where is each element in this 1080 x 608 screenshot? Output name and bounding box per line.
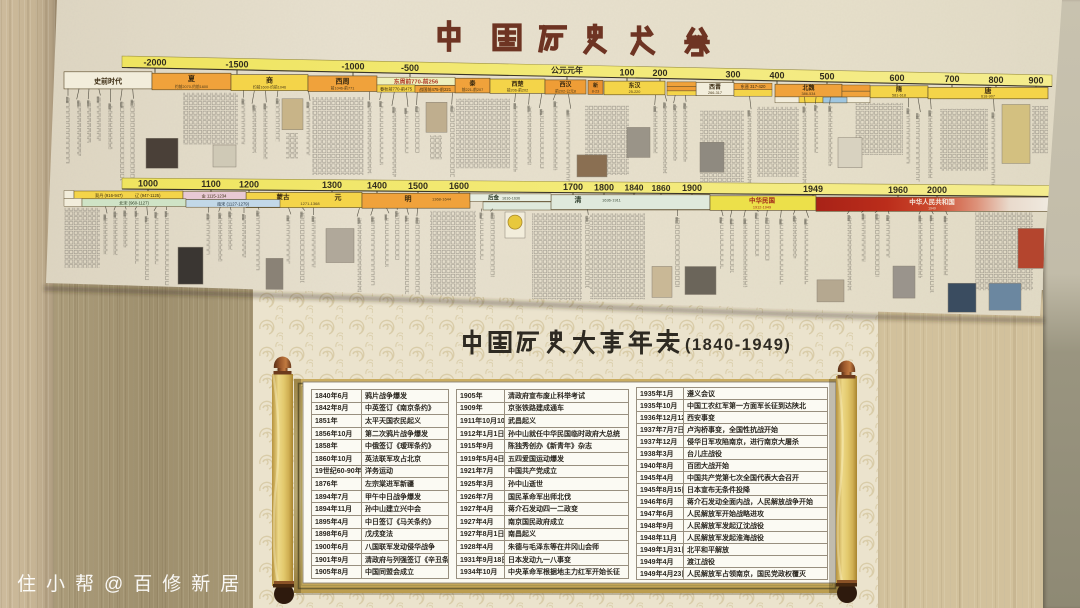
svg-text:西周: 西周 bbox=[336, 76, 350, 85]
svg-text:1300: 1300 bbox=[322, 180, 342, 190]
svg-text:北魏: 北魏 bbox=[802, 84, 814, 92]
svg-text:辽 (947-1125): 辽 (947-1125) bbox=[135, 192, 161, 199]
svg-text:-500: -500 bbox=[401, 63, 419, 73]
svg-text:秦: 秦 bbox=[468, 79, 475, 87]
svg-text:明: 明 bbox=[405, 194, 412, 203]
svg-text:1636-1911: 1636-1911 bbox=[602, 197, 622, 202]
svg-text:1860: 1860 bbox=[652, 183, 671, 193]
svg-text:战国前475-前221: 战国前475-前221 bbox=[419, 86, 452, 93]
svg-text:1949: 1949 bbox=[803, 184, 823, 194]
svg-text:前206-前202: 前206-前202 bbox=[507, 88, 529, 93]
svg-text:-2000: -2000 bbox=[143, 58, 166, 68]
svg-text:隋: 隋 bbox=[896, 86, 902, 94]
svg-text:前1046-前771: 前1046-前771 bbox=[331, 86, 355, 91]
svg-text:25-220: 25-220 bbox=[629, 90, 641, 94]
svg-text:东周前770-前256: 东周前770-前256 bbox=[394, 78, 439, 86]
svg-text:700: 700 bbox=[944, 74, 959, 84]
svg-text:契丹 (916-947): 契丹 (916-947) bbox=[95, 192, 123, 199]
svg-text:前202-公元8: 前202-公元8 bbox=[555, 88, 576, 93]
svg-text:1500: 1500 bbox=[408, 181, 428, 191]
svg-text:400: 400 bbox=[769, 70, 784, 80]
svg-text:300: 300 bbox=[725, 70, 740, 80]
svg-text:1100: 1100 bbox=[201, 179, 221, 189]
svg-text:1800: 1800 bbox=[594, 182, 614, 192]
svg-text:1700: 1700 bbox=[563, 182, 583, 192]
svg-text:南宋 (1127-1279): 南宋 (1127-1279) bbox=[217, 200, 250, 207]
svg-text:北宋 (960-1127): 北宋 (960-1127) bbox=[119, 200, 149, 207]
svg-text:西晋: 西晋 bbox=[709, 83, 721, 91]
svg-text:386-534: 386-534 bbox=[802, 92, 816, 96]
svg-text:夏: 夏 bbox=[187, 74, 196, 83]
svg-text:东汉: 东汉 bbox=[628, 82, 641, 90]
svg-text:清: 清 bbox=[575, 195, 582, 204]
svg-text:1000: 1000 bbox=[138, 179, 158, 189]
svg-text:东晋 317-420: 东晋 317-420 bbox=[741, 83, 767, 90]
svg-text:公元元年: 公元元年 bbox=[551, 65, 583, 75]
svg-text:1949: 1949 bbox=[928, 207, 936, 211]
svg-text:1960: 1960 bbox=[888, 185, 908, 195]
svg-text:1912-1949: 1912-1949 bbox=[753, 205, 771, 209]
svg-text:史前时代: 史前时代 bbox=[94, 76, 122, 85]
svg-text:1900: 1900 bbox=[682, 183, 702, 193]
svg-text:后金: 后金 bbox=[488, 194, 500, 202]
svg-text:元: 元 bbox=[335, 193, 342, 201]
svg-text:500: 500 bbox=[819, 71, 834, 81]
svg-text:1616-1636: 1616-1636 bbox=[502, 196, 520, 200]
svg-text:-1500: -1500 bbox=[225, 59, 248, 69]
svg-text:100: 100 bbox=[619, 67, 634, 77]
svg-text:前221-前207: 前221-前207 bbox=[462, 87, 484, 92]
svg-text:900: 900 bbox=[1028, 76, 1043, 86]
svg-text:618-907: 618-907 bbox=[981, 94, 995, 98]
svg-text:581-618: 581-618 bbox=[892, 93, 906, 97]
svg-text:西楚: 西楚 bbox=[511, 80, 524, 88]
svg-text:约前1600-约前1046: 约前1600-约前1046 bbox=[253, 85, 286, 90]
svg-text:金 1115-1234: 金 1115-1234 bbox=[202, 193, 227, 199]
svg-text:600: 600 bbox=[889, 73, 904, 83]
svg-text:800: 800 bbox=[988, 75, 1003, 85]
svg-text:1200: 1200 bbox=[239, 180, 259, 190]
svg-text:西汉: 西汉 bbox=[559, 81, 572, 89]
svg-text:商: 商 bbox=[266, 75, 273, 84]
svg-text:1271-1368: 1271-1368 bbox=[300, 201, 320, 206]
svg-text:约前2070-约前1600: 约前2070-约前1600 bbox=[175, 84, 208, 89]
svg-text:1600: 1600 bbox=[449, 181, 469, 191]
svg-text:-1000: -1000 bbox=[341, 62, 364, 72]
svg-text:中华民国: 中华民国 bbox=[749, 196, 776, 205]
svg-text:新: 新 bbox=[593, 82, 598, 89]
svg-text:1840: 1840 bbox=[625, 183, 644, 193]
svg-text:春秋前770-前475: 春秋前770-前475 bbox=[380, 85, 413, 92]
svg-text:2000: 2000 bbox=[927, 185, 947, 195]
svg-text:266-317: 266-317 bbox=[708, 91, 722, 95]
svg-text:1368-1644: 1368-1644 bbox=[432, 197, 452, 202]
svg-text:1400: 1400 bbox=[367, 181, 387, 191]
svg-text:中华人民共和国: 中华人民共和国 bbox=[909, 197, 955, 206]
svg-text:8-23: 8-23 bbox=[592, 90, 600, 94]
svg-text:200: 200 bbox=[652, 68, 667, 78]
